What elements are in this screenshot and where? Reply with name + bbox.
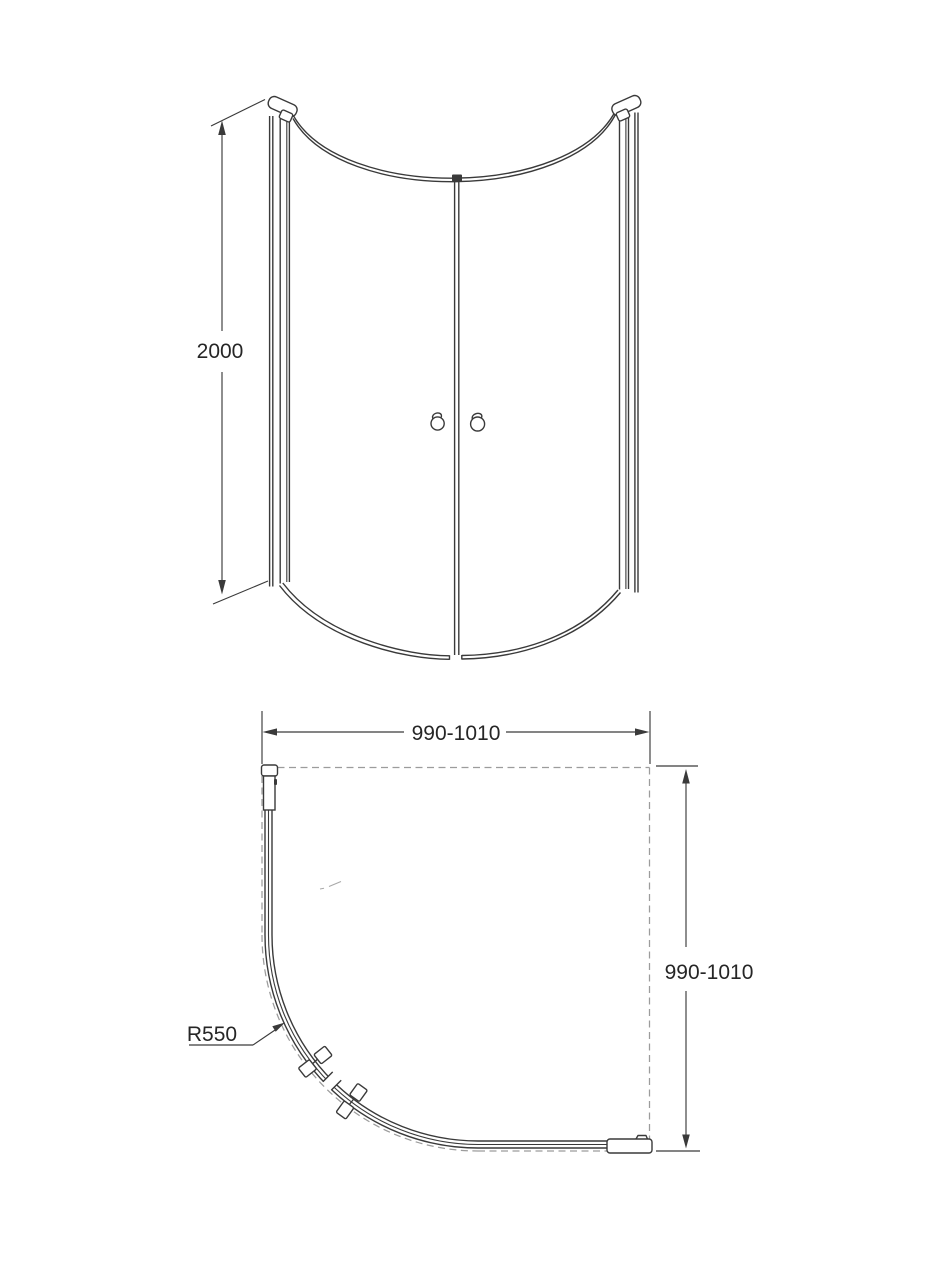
depth-dim-arrow-up — [682, 769, 690, 784]
height-dimension-label: 2000 — [197, 340, 244, 363]
depth-dimension — [656, 766, 700, 1151]
stray-mark-large — [329, 882, 341, 887]
depth-dimension-label: 990-1010 — [665, 961, 754, 984]
right-knob-ball — [471, 417, 485, 431]
width-dim-arrow-left — [263, 728, 278, 735]
glass-bottom-edge-left-outer — [280, 586, 450, 660]
plan-bottom-right-profile-body — [607, 1139, 652, 1153]
plan-glass-middle-line — [269, 810, 608, 1145]
glass-bottom-edge-left-inner — [283, 583, 450, 656]
glass-bottom-edge-right-outer — [462, 593, 621, 660]
tray-outline-dashed — [262, 768, 650, 1152]
plan-bottom-right-wall-profile — [607, 1136, 652, 1154]
plan-top-left-wall-profile — [262, 765, 278, 810]
upper-handle-inner-knob — [314, 1046, 332, 1064]
front-elevation-view — [211, 94, 643, 660]
plan-top-left-profile-cap — [262, 765, 278, 776]
height-dim-arrow-down — [218, 580, 226, 595]
plan-glass-outer-line — [265, 810, 608, 1148]
shower-enclosure-drawing: 2000 990-1010 990-1010 R550 — [0, 0, 946, 1271]
top-center-clamp — [452, 175, 462, 182]
glass-top-edge-outer — [293, 110, 616, 178]
radius-dimension-label: R550 — [187, 1023, 237, 1046]
plan-top-left-profile-nub — [274, 779, 277, 785]
left-knob-ball — [431, 417, 444, 430]
plan-top-left-profile-body — [264, 776, 276, 810]
left-door-knob — [431, 412, 444, 430]
plan-glass-inner-line — [272, 810, 608, 1141]
height-dim-arrow-up — [218, 121, 226, 136]
depth-dim-arrow-down — [682, 1135, 690, 1149]
height-dim-ext-top — [211, 100, 265, 127]
glass-top-edge-inner — [293, 114, 616, 182]
right-door-knob — [471, 412, 485, 431]
width-dimension-label: 990-1010 — [412, 722, 501, 745]
technical-drawing-page: 2000 990-1010 990-1010 R550 — [0, 0, 946, 1271]
plan-view — [189, 711, 700, 1153]
lower-handle-outer-knob — [336, 1101, 354, 1119]
stray-mark-small — [320, 888, 324, 889]
radius-callout-leader — [253, 1028, 278, 1045]
width-dim-arrow-right — [635, 728, 650, 735]
